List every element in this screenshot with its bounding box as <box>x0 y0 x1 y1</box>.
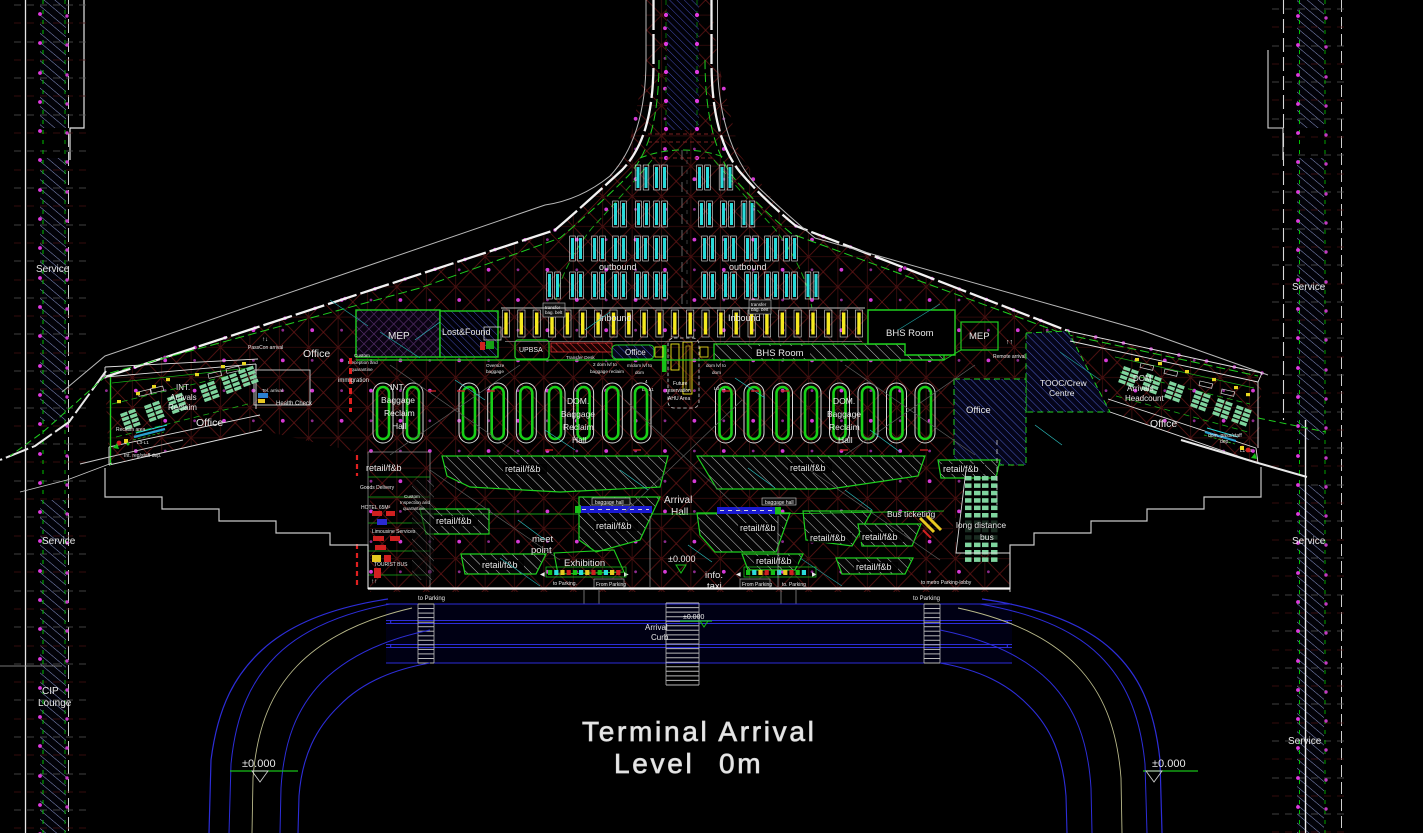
svg-text:Headcount: Headcount <box>1125 394 1164 403</box>
svg-text:retail/f&b: retail/f&b <box>790 463 826 473</box>
svg-text:◀: ◀ <box>540 572 545 578</box>
svg-text:Inspection and: Inspection and <box>400 500 430 505</box>
svg-text:Baggage: Baggage <box>827 409 861 419</box>
svg-text:±0.000: ±0.000 <box>683 614 704 621</box>
svg-text:dom lvf to: dom lvf to <box>706 363 726 368</box>
svg-text:Arrival: Arrival <box>664 495 692 506</box>
svg-text:retail/f&b: retail/f&b <box>756 556 792 566</box>
svg-text:baggage hall: baggage hall <box>765 500 794 506</box>
svg-text:Inbound: Inbound <box>599 313 632 323</box>
svg-text:Service: Service <box>42 536 76 547</box>
svg-text:retail/f&b: retail/f&b <box>366 463 402 473</box>
svg-text:Arrivals: Arrivals <box>1127 384 1154 393</box>
svg-text:Baggage: Baggage <box>381 395 415 405</box>
svg-text:Reclaim: Reclaim <box>563 422 594 432</box>
svg-text:±0.000: ±0.000 <box>242 758 276 770</box>
svg-text:INT.: INT. <box>176 383 190 392</box>
svg-text:Service: Service <box>1288 736 1322 747</box>
svg-text:long distance: long distance <box>956 520 1006 530</box>
svg-text:Tel. arrival: Tel. arrival <box>262 388 283 393</box>
svg-text:outbound: outbound <box>729 262 767 272</box>
svg-text:PassCon arrival: PassCon arrival <box>248 345 283 351</box>
svg-text:bus: bus <box>980 532 994 542</box>
svg-text:baggage reclaim: baggage reclaim <box>590 369 624 374</box>
svg-text:Custom: Custom <box>404 494 420 499</box>
svg-text:Office: Office <box>196 417 223 429</box>
svg-text:Service: Service <box>1292 282 1326 293</box>
svg-text:baggage hall: baggage hall <box>595 500 624 506</box>
svg-text:retail/f&b: retail/f&b <box>862 532 898 542</box>
svg-text:to Parking.: to Parking. <box>553 581 577 587</box>
svg-text:UPBSA: UPBSA <box>519 347 543 354</box>
svg-text:retail/f&b: retail/f&b <box>596 521 632 531</box>
svg-text:Hall: Hall <box>572 435 587 445</box>
svg-text:From Parking: From Parking <box>742 582 772 588</box>
svg-text:From Parking: From Parking <box>596 582 626 588</box>
svg-text:BHS Room: BHS Room <box>886 328 934 339</box>
svg-text:retail/f&b: retail/f&b <box>505 464 541 474</box>
svg-text:Health Check: Health Check <box>276 401 313 407</box>
svg-text:Curb: Curb <box>651 633 669 642</box>
svg-text:Transfer Desk: Transfer Desk <box>566 355 595 360</box>
svg-text:Reclaim area: Reclaim area <box>116 427 146 433</box>
svg-text:bag. belt: bag. belt <box>545 310 563 315</box>
svg-text:retail/f&b: retail/f&b <box>482 560 518 570</box>
svg-text:±0.000: ±0.000 <box>1152 758 1186 770</box>
svg-text:Lost&Found: Lost&Found <box>442 327 491 337</box>
svg-text:2 dom lvf to: 2 dom lvf to <box>593 362 617 367</box>
svg-text:Reception and: Reception and <box>348 360 378 365</box>
svg-text:BHS Room: BHS Room <box>756 348 804 359</box>
svg-text:TOOC/Crew: TOOC/Crew <box>1040 378 1087 388</box>
svg-text:Hall: Hall <box>838 435 853 445</box>
svg-text:Future: Future <box>673 381 688 387</box>
svg-text:Office: Office <box>1150 418 1177 430</box>
svg-text:↑↑: ↑↑ <box>1006 339 1013 346</box>
svg-text:±0.000: ±0.000 <box>668 554 695 564</box>
svg-text:Level: Level <box>614 748 694 779</box>
svg-text:AHU Area: AHU Area <box>668 396 690 402</box>
svg-text:quarantine: quarantine <box>403 506 425 511</box>
svg-text:Reclaim: Reclaim <box>168 403 197 412</box>
svg-text:retail/f&b: retail/f&b <box>436 516 472 526</box>
svg-text:◀: ◀ <box>736 572 741 578</box>
svg-text:Service: Service <box>1292 536 1326 547</box>
svg-text:0m: 0m <box>719 748 763 779</box>
svg-text:m/dom lvf to: m/dom lvf to <box>627 363 652 368</box>
svg-text:CIP: CIP <box>42 686 59 697</box>
svg-text:quarantine: quarantine <box>351 367 373 372</box>
svg-text:baggage: baggage <box>486 369 504 374</box>
svg-text:HOTEL 65M²: HOTEL 65M² <box>361 505 391 511</box>
svg-text:to metro Parking-lobby: to metro Parking-lobby <box>921 580 972 586</box>
svg-text:4: 4 <box>645 379 648 384</box>
svg-text:Office: Office <box>966 405 991 416</box>
svg-text:Reclaim: Reclaim <box>384 408 415 418</box>
svg-text:DOM.: DOM. <box>1133 374 1154 383</box>
svg-text:retail/f&b: retail/f&b <box>943 464 979 474</box>
svg-text:Goods Delivery: Goods Delivery <box>360 485 395 491</box>
svg-text:Office: Office <box>303 348 330 360</box>
svg-text:dom: dom <box>635 370 644 375</box>
svg-text:dom: dom <box>712 370 721 375</box>
svg-text:Inbound: Inbound <box>728 313 761 323</box>
svg-text:Custom: Custom <box>354 353 370 358</box>
svg-text:retail/f&b: retail/f&b <box>856 562 892 572</box>
svg-text:to. Parking: to. Parking <box>782 582 806 588</box>
svg-text:Oversize: Oversize <box>486 363 505 368</box>
svg-text:DOM.: DOM. <box>567 396 589 406</box>
svg-text:↑↑: ↑↑ <box>371 579 377 585</box>
svg-text:Service: Service <box>36 264 70 275</box>
svg-text:Baggage: Baggage <box>561 409 595 419</box>
svg-text:Arrivals: Arrivals <box>170 393 197 402</box>
svg-text:Terminal Arrival: Terminal Arrival <box>582 716 817 747</box>
svg-text:Hall: Hall <box>671 507 688 518</box>
svg-text:MEP: MEP <box>388 331 410 342</box>
svg-text:L3-L1: L3-L1 <box>137 440 149 445</box>
svg-text:meet: meet <box>532 534 553 545</box>
svg-text:to Parking: to Parking <box>418 596 445 602</box>
svg-text:TOURIST BUS: TOURIST BUS <box>374 562 408 568</box>
svg-text:Limousine Services: Limousine Services <box>372 529 416 535</box>
svg-text:Hall: Hall <box>392 421 407 431</box>
svg-text:info.: info. <box>705 570 723 581</box>
svg-text:dep.: dep. <box>1220 439 1230 445</box>
svg-text:Reclaim: Reclaim <box>829 422 860 432</box>
svg-text:immigration: immigration <box>338 378 369 384</box>
svg-text:Office: Office <box>625 348 646 357</box>
svg-text:INT.: INT. <box>390 382 405 392</box>
svg-text:Remote arrival: Remote arrival <box>993 354 1026 360</box>
svg-text:Lounge: Lounge <box>38 698 72 709</box>
svg-text:outbound: outbound <box>599 262 637 272</box>
svg-text:retail/f&b: retail/f&b <box>810 533 846 543</box>
svg-text:DOM.: DOM. <box>833 396 855 406</box>
svg-text:point: point <box>531 545 552 556</box>
svg-text:reservation: reservation <box>666 388 691 394</box>
svg-text:to Parking: to Parking <box>913 596 940 602</box>
svg-text:↑↓: ↑↓ <box>262 337 268 343</box>
svg-text:Arrival: Arrival <box>645 623 668 632</box>
svg-text:retail/f&b: retail/f&b <box>740 523 776 533</box>
svg-text:taxi: taxi <box>707 581 722 592</box>
svg-text:Centre: Centre <box>1049 388 1075 398</box>
svg-text:Int. reg/staff dep.: Int. reg/staff dep. <box>124 453 161 459</box>
svg-text:MEP: MEP <box>969 331 990 342</box>
